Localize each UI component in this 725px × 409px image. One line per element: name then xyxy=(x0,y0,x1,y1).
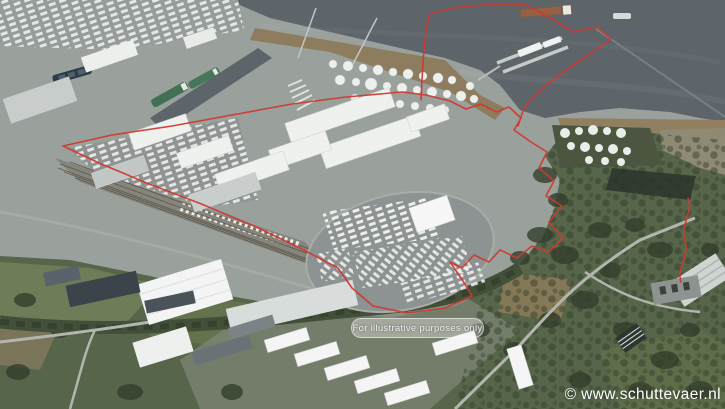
disclaimer-badge: For illustrative purposes only xyxy=(351,318,484,338)
aerial-photo-scene xyxy=(0,0,725,409)
aerial-photo: For illustrative purposes only © www.sch… xyxy=(0,0,725,409)
trailer-rows xyxy=(316,248,354,282)
small-vessel xyxy=(613,13,631,19)
watermark: © www.schuttevaer.nl xyxy=(565,386,721,404)
disclaimer-text: For illustrative purposes only xyxy=(353,323,483,334)
watermark-text: © www.schuttevaer.nl xyxy=(565,386,721,403)
